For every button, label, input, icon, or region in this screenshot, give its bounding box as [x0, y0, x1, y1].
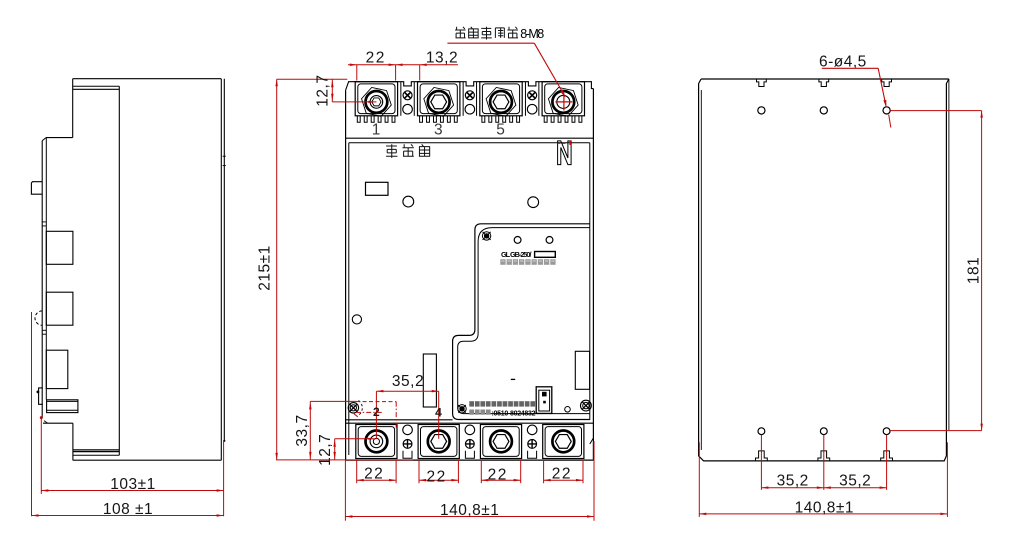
svg-text:35,2: 35,2	[392, 373, 424, 390]
svg-text:22: 22	[426, 469, 446, 486]
svg-text:22: 22	[488, 467, 508, 484]
svg-text::0510-8024832: :0510-8024832	[492, 410, 536, 417]
svg-text:13,2: 13,2	[426, 50, 458, 67]
svg-text:12,7: 12,7	[317, 434, 334, 466]
svg-text:33,7: 33,7	[294, 414, 311, 446]
svg-text:181: 181	[966, 257, 983, 284]
svg-text:4: 4	[435, 406, 442, 420]
svg-text:12,7: 12,7	[315, 75, 332, 107]
svg-text:22: 22	[366, 49, 386, 66]
svg-text:5: 5	[496, 122, 505, 139]
svg-text:108 ±1: 108 ±1	[103, 501, 153, 518]
svg-text:GL GB-250/: GL GB-250/	[501, 250, 532, 259]
svg-text:22: 22	[364, 466, 384, 483]
svg-text:22: 22	[552, 466, 572, 483]
svg-text:140,8±1: 140,8±1	[440, 502, 499, 519]
svg-text:1: 1	[372, 122, 381, 139]
svg-text:8-M8: 8-M8	[520, 27, 544, 41]
svg-text:103±1: 103±1	[110, 476, 156, 493]
svg-text:3: 3	[434, 122, 443, 139]
svg-text:35,2: 35,2	[777, 472, 809, 489]
svg-text:140,8±1: 140,8±1	[795, 499, 854, 516]
svg-text:35,2: 35,2	[839, 472, 871, 489]
svg-text:215±1: 215±1	[257, 245, 274, 291]
